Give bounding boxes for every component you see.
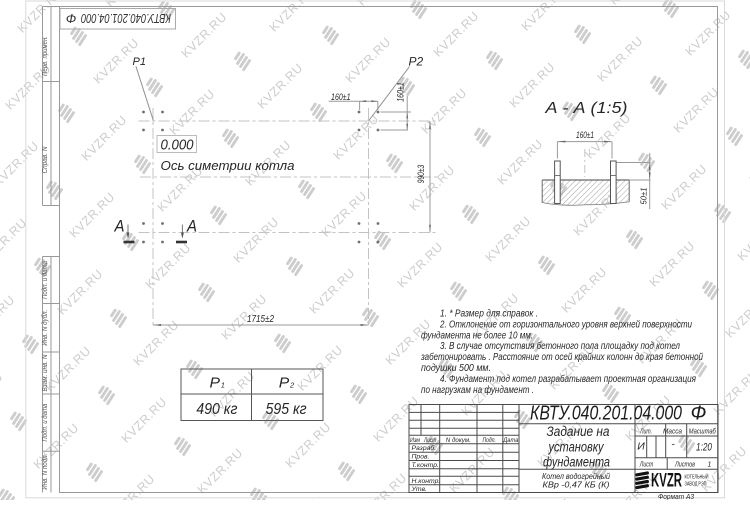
svg-text:Инв. N подл.: Инв. N подл. bbox=[40, 454, 49, 490]
svg-text:2: 2 bbox=[289, 381, 295, 390]
svg-text:Масштаб: Масштаб bbox=[689, 427, 717, 435]
svg-text:Ф: Ф bbox=[691, 403, 707, 425]
svg-text:Ось симетрии котла: Ось симетрии котла bbox=[161, 158, 295, 173]
svg-text:1. * Размер для справок .: 1. * Размер для справок . bbox=[440, 309, 538, 320]
svg-text:Н.контр.: Н.контр. bbox=[412, 478, 441, 485]
svg-text:Подп. и дата: Подп. и дата bbox=[40, 404, 49, 442]
svg-text:KVZR: KVZR bbox=[651, 470, 682, 491]
svg-text:P1: P1 bbox=[133, 56, 146, 68]
svg-text:Масса: Масса bbox=[663, 428, 682, 435]
svg-text:50±1: 50±1 bbox=[638, 187, 648, 204]
svg-text:по нагрузкам на фундамент .: по нагрузкам на фундамент . bbox=[421, 385, 534, 396]
svg-text:Задание на: Задание на bbox=[547, 424, 610, 439]
svg-text:1: 1 bbox=[708, 462, 712, 469]
svg-text:160±1: 160±1 bbox=[576, 130, 594, 140]
svg-text:Утв.: Утв. bbox=[411, 486, 428, 493]
svg-text:3. В случае отсутствия бетонно: 3. В случае отсутствия бетонного пола пл… bbox=[440, 341, 680, 352]
svg-text:Дата: Дата bbox=[502, 437, 518, 444]
svg-text:1715±2: 1715±2 bbox=[247, 313, 274, 325]
svg-text:фундамента: фундамента bbox=[543, 455, 610, 470]
svg-text:2. Отклонение от горизонтально: 2. Отклонение от горизонтального уровня … bbox=[439, 319, 692, 330]
svg-text:забетонировать . Расстояние от: забетонировать . Расстояние от осей край… bbox=[420, 352, 703, 363]
svg-text:КОТЕЛЬНЫЙ: КОТЕЛЬНЫЙ bbox=[685, 473, 709, 481]
svg-text:0.000: 0.000 bbox=[161, 138, 194, 154]
svg-text:Справ. N: Справ. N bbox=[40, 146, 49, 174]
svg-text:фундамента не более 10 мм.: фундамента не более 10 мм. bbox=[421, 330, 533, 341]
svg-text:N докум.: N докум. bbox=[446, 436, 471, 444]
svg-text:595 кг: 595 кг bbox=[266, 401, 307, 418]
svg-text:Лист: Лист bbox=[639, 462, 653, 469]
svg-text:Подп.: Подп. bbox=[482, 436, 496, 444]
svg-text:160±1: 160±1 bbox=[396, 82, 407, 102]
svg-text:ЗАВОД РЭП: ЗАВОД РЭП bbox=[685, 481, 707, 487]
svg-text:подушки 500 мм.: подушки 500 мм. bbox=[421, 363, 491, 374]
svg-text:Изм: Изм bbox=[410, 437, 420, 444]
svg-text:Разраб.: Разраб. bbox=[412, 444, 437, 452]
svg-text:А: А bbox=[114, 218, 125, 236]
svg-text:А: А bbox=[186, 218, 197, 236]
svg-text:Ф: Ф bbox=[66, 11, 76, 26]
svg-text:Р: Р bbox=[210, 375, 221, 392]
svg-text:4. Фундамент под котел разраба: 4. Фундамент под котел разрабатывает про… bbox=[440, 374, 697, 385]
svg-text:P2: P2 bbox=[409, 55, 424, 69]
svg-text:1: 1 bbox=[221, 381, 225, 390]
svg-text:490 кг: 490 кг bbox=[196, 401, 237, 418]
svg-text:И: И bbox=[637, 440, 645, 452]
svg-text:990±3: 990±3 bbox=[416, 164, 426, 183]
svg-text:Взам. инв. N: Взам. инв. N bbox=[40, 354, 49, 392]
svg-text:Пров.: Пров. bbox=[412, 453, 430, 460]
svg-text:Подп. и дата: Подп. и дата bbox=[40, 261, 49, 299]
svg-text:-: - bbox=[671, 438, 675, 450]
svg-text:КВр -0,47 КБ (К): КВр -0,47 КБ (К) bbox=[543, 481, 610, 490]
svg-text:Лит.: Лит. bbox=[639, 428, 652, 435]
svg-text:КВТУ.040.201.04.000: КВТУ.040.201.04.000 bbox=[530, 403, 682, 425]
svg-text:1:20: 1:20 bbox=[696, 441, 713, 453]
svg-text:КВТУ.040.201.04.000: КВТУ.040.201.04.000 bbox=[81, 11, 171, 26]
svg-text:Т.контр.: Т.контр. bbox=[412, 462, 440, 469]
svg-text:Перв. примен.: Перв. примен. bbox=[40, 36, 49, 76]
svg-text:Лист: Лист bbox=[423, 437, 436, 444]
svg-text:Листов: Листов bbox=[674, 462, 695, 469]
svg-text:Инв. N дубл.: Инв. N дубл. bbox=[40, 310, 49, 346]
svg-text:Р: Р bbox=[279, 375, 290, 392]
svg-text:установку: установку bbox=[548, 440, 605, 455]
svg-text:Формат А3: Формат А3 bbox=[658, 492, 694, 500]
svg-text:А - А (1:5): А - А (1:5) bbox=[544, 100, 627, 117]
